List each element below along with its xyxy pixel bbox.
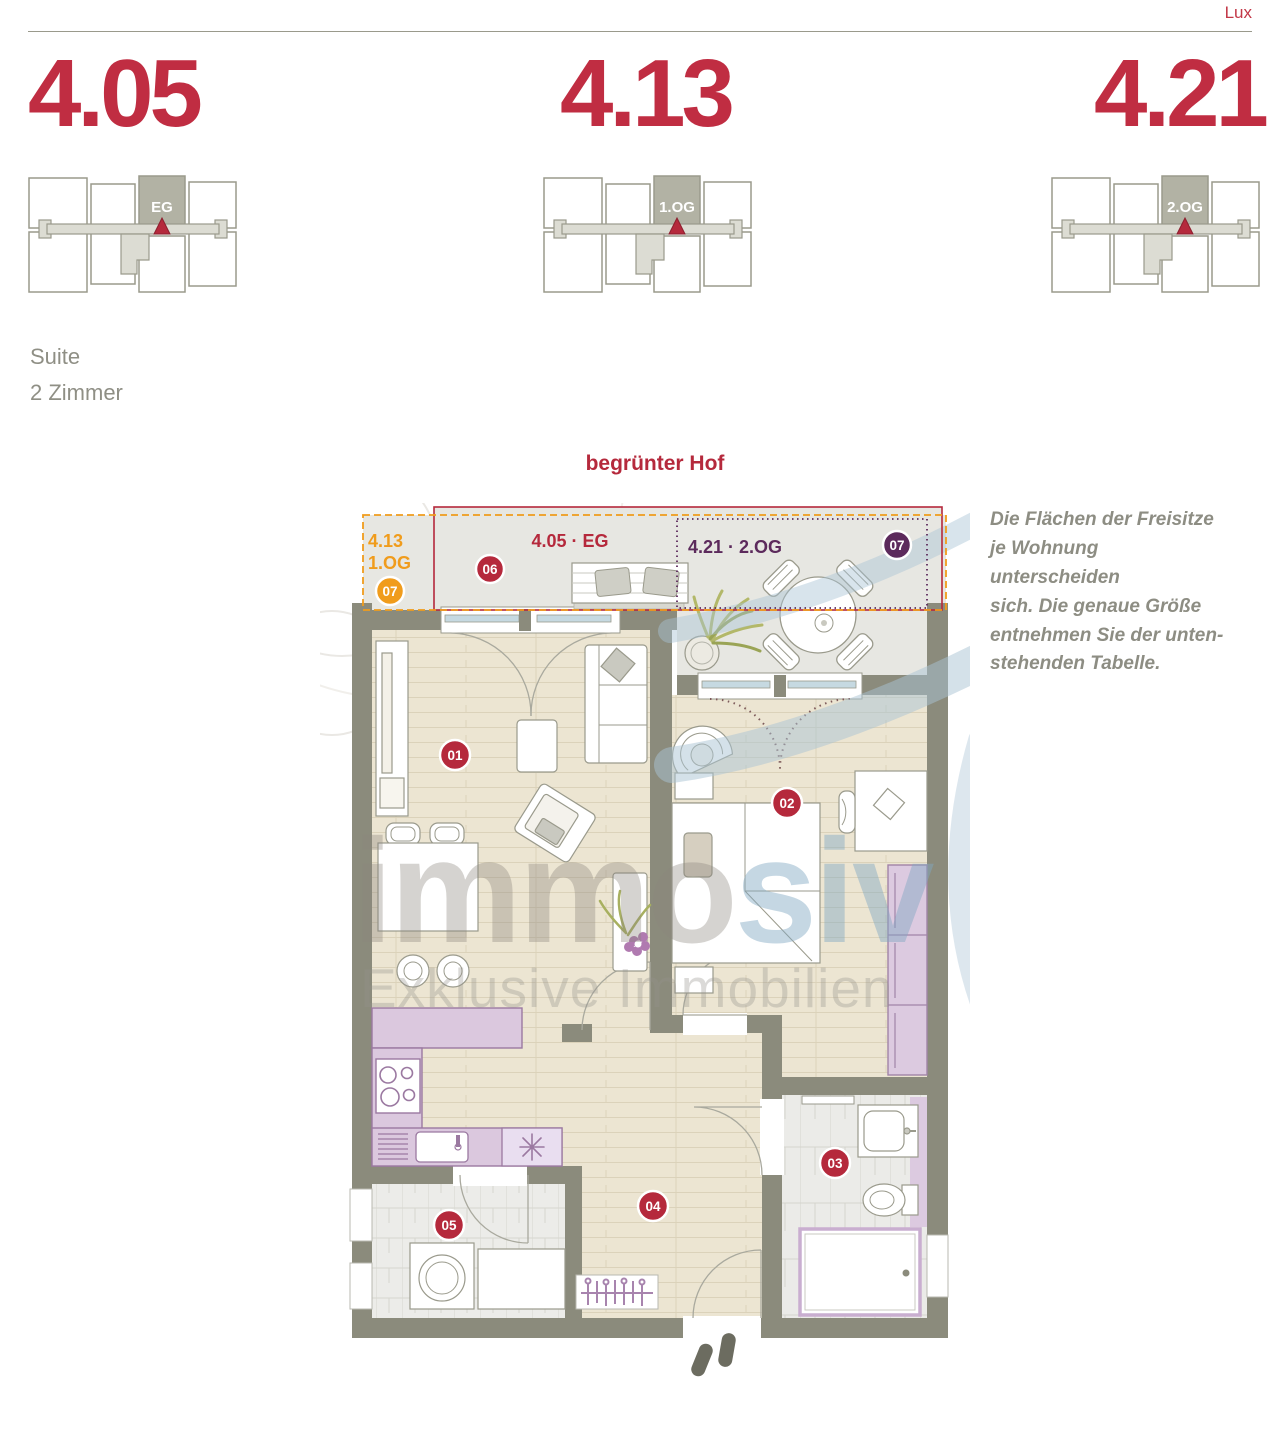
terrace-label-413-line2: 1.OG — [368, 553, 411, 573]
sofa — [585, 645, 647, 763]
room-badge-03: 03 — [820, 1148, 850, 1178]
entrance-opening — [683, 1316, 761, 1340]
shelf-unit — [376, 641, 408, 816]
note-line: sich. Die genaue Größe — [990, 593, 1230, 622]
note-line: Die Flächen der Freisitze — [990, 506, 1230, 535]
floor-label: 2.OG — [1167, 199, 1203, 216]
hall-floor — [565, 1024, 782, 1318]
terrace-label-421: 4.21 · 2.OG — [688, 537, 782, 557]
svg-text:01: 01 — [447, 748, 463, 763]
terrace-badge-06: 06 — [476, 555, 504, 583]
bench — [572, 563, 688, 609]
coffee-table — [517, 720, 557, 772]
site-plan-icon-1og: 1.OG — [540, 168, 755, 313]
brand-label: Lux — [1225, 3, 1252, 23]
floor-label: EG — [151, 199, 173, 216]
terrace-label-413-line1: 4.13 — [368, 531, 403, 551]
coat-rack — [576, 1275, 658, 1309]
header-rule — [28, 31, 1252, 32]
kitchen-sink — [416, 1132, 468, 1162]
note-line: stehenden Tabelle. — [990, 650, 1230, 679]
room-badge-04: 04 — [638, 1191, 668, 1221]
site-plan-icon-2og: 2.OG — [1048, 168, 1263, 313]
apartment-rooms: 2 Zimmer — [30, 380, 123, 406]
apartment-type: Suite — [30, 344, 80, 370]
shower — [800, 1229, 920, 1315]
towel-radiator — [802, 1096, 854, 1104]
svg-text:02: 02 — [779, 796, 794, 811]
pillow — [684, 833, 712, 877]
unit-number-421: 4.21 — [1094, 46, 1265, 142]
freisitz-note: Die Flächen der Freisitze je Wohnung unt… — [990, 506, 1230, 679]
unit-number-413: 4.13 — [560, 46, 731, 142]
washbasin — [858, 1105, 918, 1157]
svg-text:06: 06 — [482, 562, 498, 577]
brochure-page: { "page": { "brand": "Lux" }, "units": [… — [0, 0, 1280, 1431]
bedroom-wardrobe — [888, 865, 927, 1075]
svg-text:05: 05 — [441, 1218, 457, 1233]
note-line: je Wohnung unterscheiden — [990, 535, 1230, 593]
svg-text:03: 03 — [827, 1156, 843, 1171]
terrace-label-405: 4.05 · EG — [531, 531, 608, 551]
courtyard-label: begrünter Hof — [520, 452, 790, 476]
room-badge-01: 01 — [440, 740, 470, 770]
svg-text:07: 07 — [382, 584, 397, 599]
utility-window — [350, 1189, 372, 1241]
stove — [376, 1059, 420, 1113]
terrace-badge-07-orange: 07 — [376, 577, 404, 605]
terrace-badge-07-purple: 07 — [883, 531, 911, 559]
site-plan-icon-eg: EG — [25, 168, 240, 313]
utility-counter — [478, 1249, 565, 1309]
fridge-icon — [502, 1128, 562, 1166]
room-badge-05: 05 — [434, 1210, 464, 1240]
room-badge-02: 02 — [772, 788, 802, 818]
washing-machine — [410, 1243, 474, 1309]
note-line: entnehmen Sie der unten- — [990, 622, 1230, 651]
svg-text:07: 07 — [889, 538, 904, 553]
unit-number-405: 4.05 — [28, 46, 199, 142]
living-window-glass — [445, 615, 519, 622]
toilet — [863, 1184, 918, 1216]
floor-plan: 4.13 1.OG 4.05 · EG 4.21 · 2.OG 07 06 07… — [320, 503, 970, 1408]
svg-text:04: 04 — [645, 1199, 661, 1214]
floor-label: 1.OG — [659, 199, 695, 216]
nightstand — [675, 967, 713, 993]
utility-room — [410, 1243, 565, 1309]
